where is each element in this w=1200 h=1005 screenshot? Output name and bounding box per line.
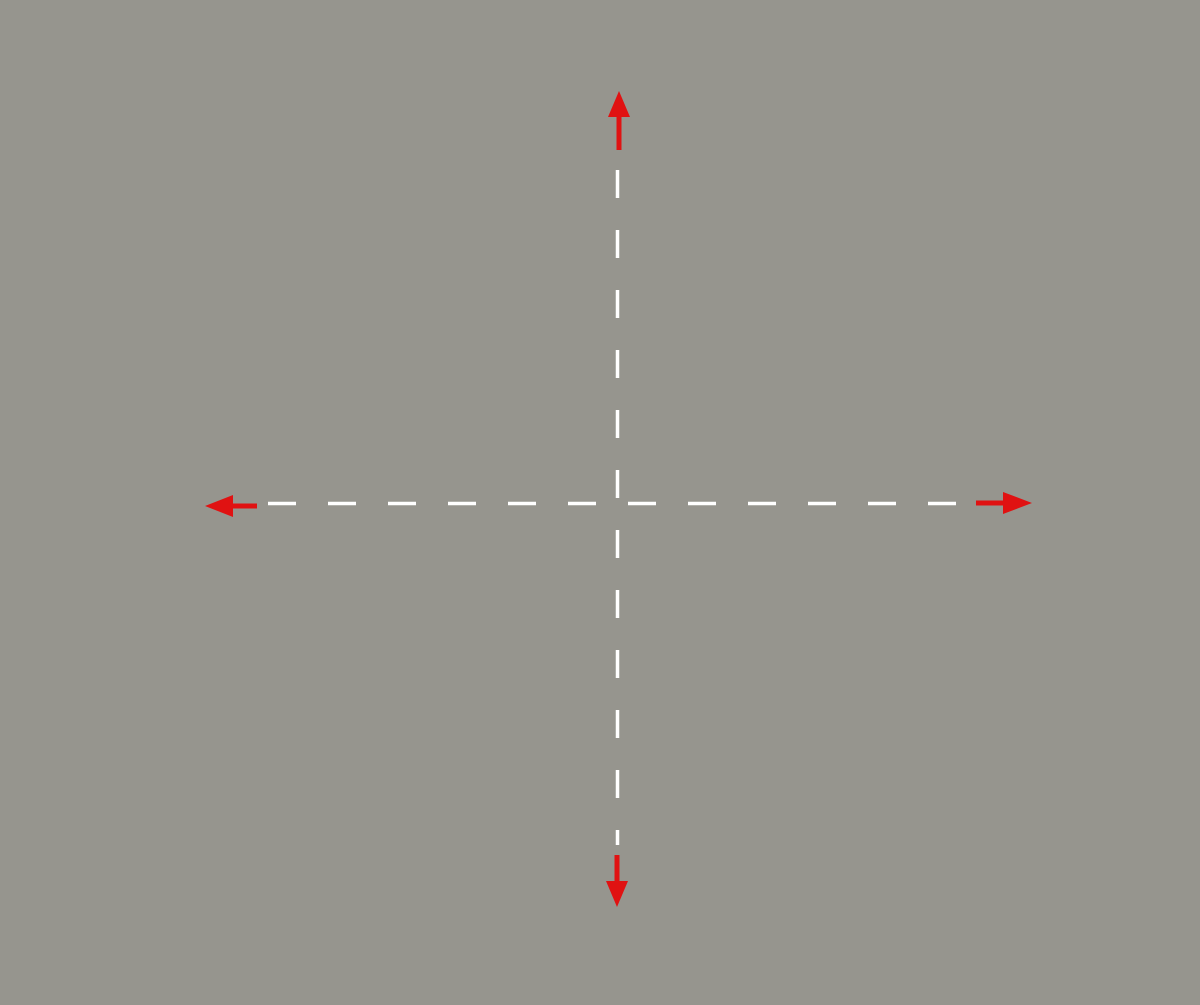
aerial-orientation-map xyxy=(0,0,1200,1005)
north-arrow-icon xyxy=(608,91,630,150)
south-arrow-icon xyxy=(606,855,628,907)
east-arrow-icon xyxy=(976,492,1032,514)
west-arrow-icon xyxy=(205,495,257,517)
annotation-overlay xyxy=(0,0,1200,1005)
